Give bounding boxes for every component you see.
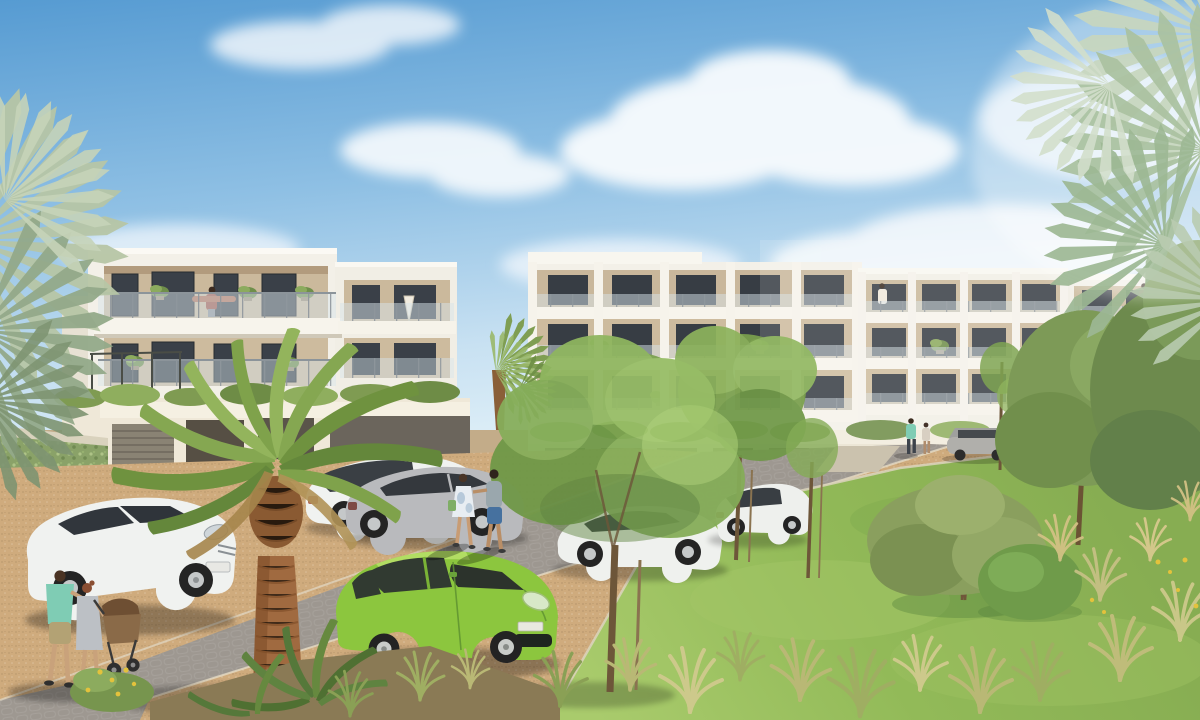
render-canvas xyxy=(0,0,1200,720)
balcony-railing xyxy=(98,293,336,320)
round-bush xyxy=(978,544,1082,622)
architectural-render-scene xyxy=(0,0,1200,720)
balcony-railing xyxy=(98,360,336,386)
